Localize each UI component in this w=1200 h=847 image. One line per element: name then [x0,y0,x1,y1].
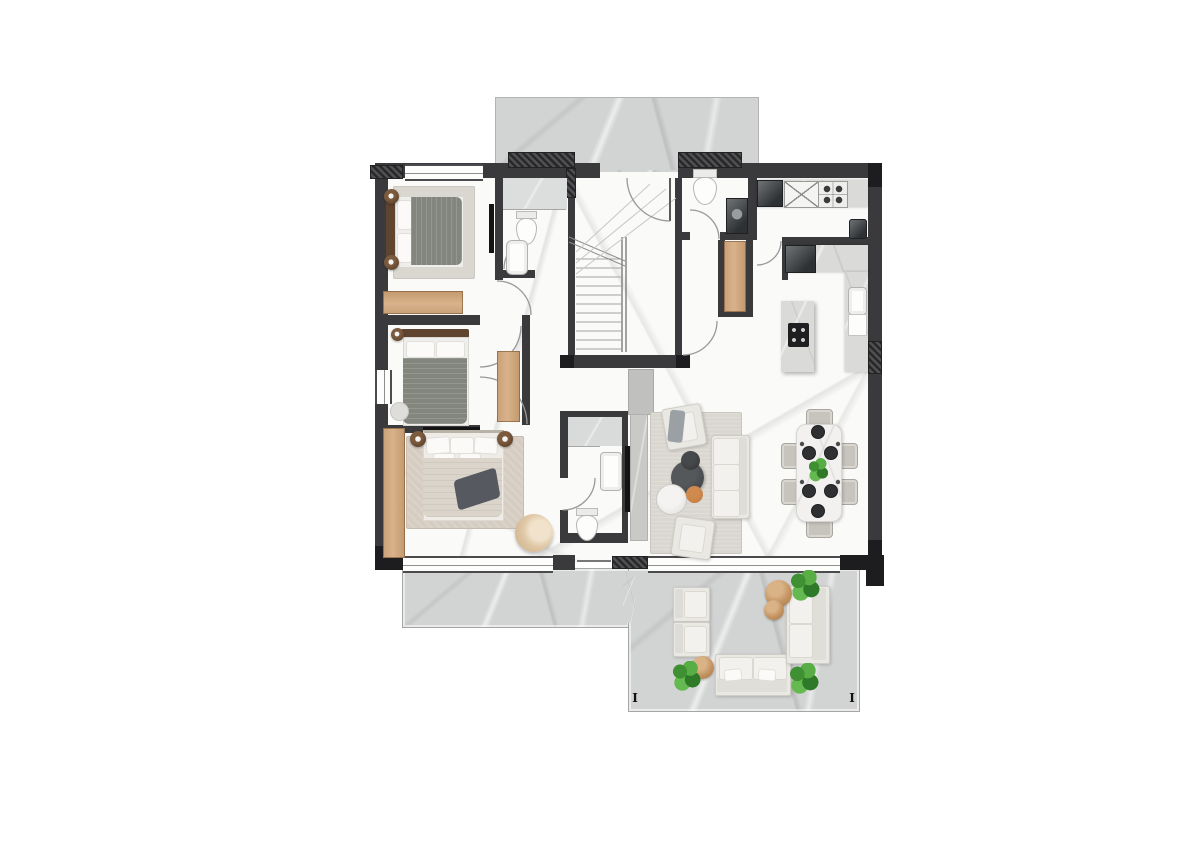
window-bedroom2-left [375,370,392,404]
kitchen-gas-hob [818,181,848,208]
bedroom1-blanket [411,197,462,265]
wc-washer [726,198,748,234]
coffee-table-orange [686,486,703,503]
living-sofa-cushion-1 [713,438,740,465]
bedroom2-pouf [390,402,409,421]
terrace-sofa-right-cushion-2 [789,624,813,658]
terrace-armchair-2 [673,622,709,656]
terrace-plant-1 [789,570,820,601]
wall-stair-bottom-cap-r [676,355,690,368]
terrace-pouf-2 [764,600,784,620]
master-wardrobe [383,428,405,558]
master-nightstand-1 [410,431,426,447]
wall-bathroom2-left-a [560,411,568,478]
terrace-armchair-2-back [675,624,683,653]
kitchen-fridge [785,245,816,273]
hall-console [628,369,654,415]
terrace-floor-joint [623,571,635,623]
pillar-hatch-right-mid [868,341,882,374]
living-sofa-back [739,437,747,515]
terrace-floor-left [402,568,630,628]
wall-bathroom1-left [495,178,503,280]
wall-stair-left [568,178,575,368]
wall-stair-bottom [560,355,690,368]
terrace-entry-mat [612,556,648,569]
coffee-table-marble [656,484,687,515]
kitchen-builtin-appliance [757,180,783,207]
living-armchair-top [661,403,707,450]
living-armchair-bottom-cushion [678,523,707,553]
bedroom1-tv-panel [489,204,494,253]
wall-bathroom1-hatch [566,168,576,198]
bedroom1-pillow-1 [397,200,412,230]
bathroom1-shower [503,178,567,209]
terrace-armchair-1-cushion [684,591,707,618]
wall-wc-kitchen [748,163,757,240]
pillar-top-right [868,163,882,187]
hall-cabinet [724,241,746,312]
bedroom2-pillow-1 [406,341,435,358]
section-marker-left: I [629,692,641,704]
pillar-right-bottom [868,540,882,570]
pillar-hatch-top-left [370,165,403,179]
terrace-armchair-2-cushion [684,626,707,653]
window-bedroom1-top [405,164,483,181]
bedroom1-nightstand-2 [384,255,399,270]
kitchen-wall-appliance [849,219,867,239]
living-sofa-cushion-3 [713,490,740,517]
bedroom1-dresser [383,291,463,314]
bedroom2-pillow-2 [436,341,465,358]
living-sofa-cushion-2 [713,464,740,491]
wall-bottom-mid [553,555,575,570]
terrace-armchair-1-back [675,589,683,618]
wall-stair-bottom-cap-l [560,355,574,368]
bedroom2-nightstand [391,328,404,341]
wall-stair-right [675,178,682,368]
wall-bed1-bed2 [375,315,480,325]
wall-wc-bottom-l [675,232,690,240]
section-marker-right: I [846,692,858,704]
dining-centerpiece-plant [808,458,828,482]
bathroom2-shower [568,417,622,446]
bathroom2-sink [600,452,622,491]
terrace-sofa-bottom-pillow-1 [723,668,742,682]
kitchen-island-hob [788,323,809,347]
master-pillow-2 [450,437,474,454]
wall-corner-stub-right [866,570,884,586]
window-master-slider [403,556,553,573]
media-wall-slab [630,414,648,541]
floor-plan-canvas: I I [0,0,1200,847]
kitchen-sink-cabinet [848,314,867,336]
terrace-armchair-1 [673,587,709,621]
master-nightstand-2 [497,431,513,447]
landing-parapet-left [508,152,575,168]
bedroom1-pillow-2 [397,233,412,263]
bathroom1-bathtub [506,240,528,275]
terrace-sofa-bottom-pillow-2 [758,668,777,682]
bedroom2-blanket [403,358,467,424]
terrace-sofa-bottom [715,654,790,695]
living-armchair-bottom [670,515,714,559]
coffee-table-small [681,451,700,470]
wall-bedroom2-right [522,315,530,425]
terrace-plant-3 [788,663,819,694]
wall-niche-right [746,240,753,311]
living-tv [625,446,630,512]
terrace-plant-2 [671,661,701,691]
bedroom2-wardrobe [497,351,520,422]
kitchen-cabinet-x [784,181,819,208]
kitchen-sink [848,287,867,315]
landing-parapet-right [678,152,742,168]
bedroom1-nightstand-1 [384,189,399,204]
